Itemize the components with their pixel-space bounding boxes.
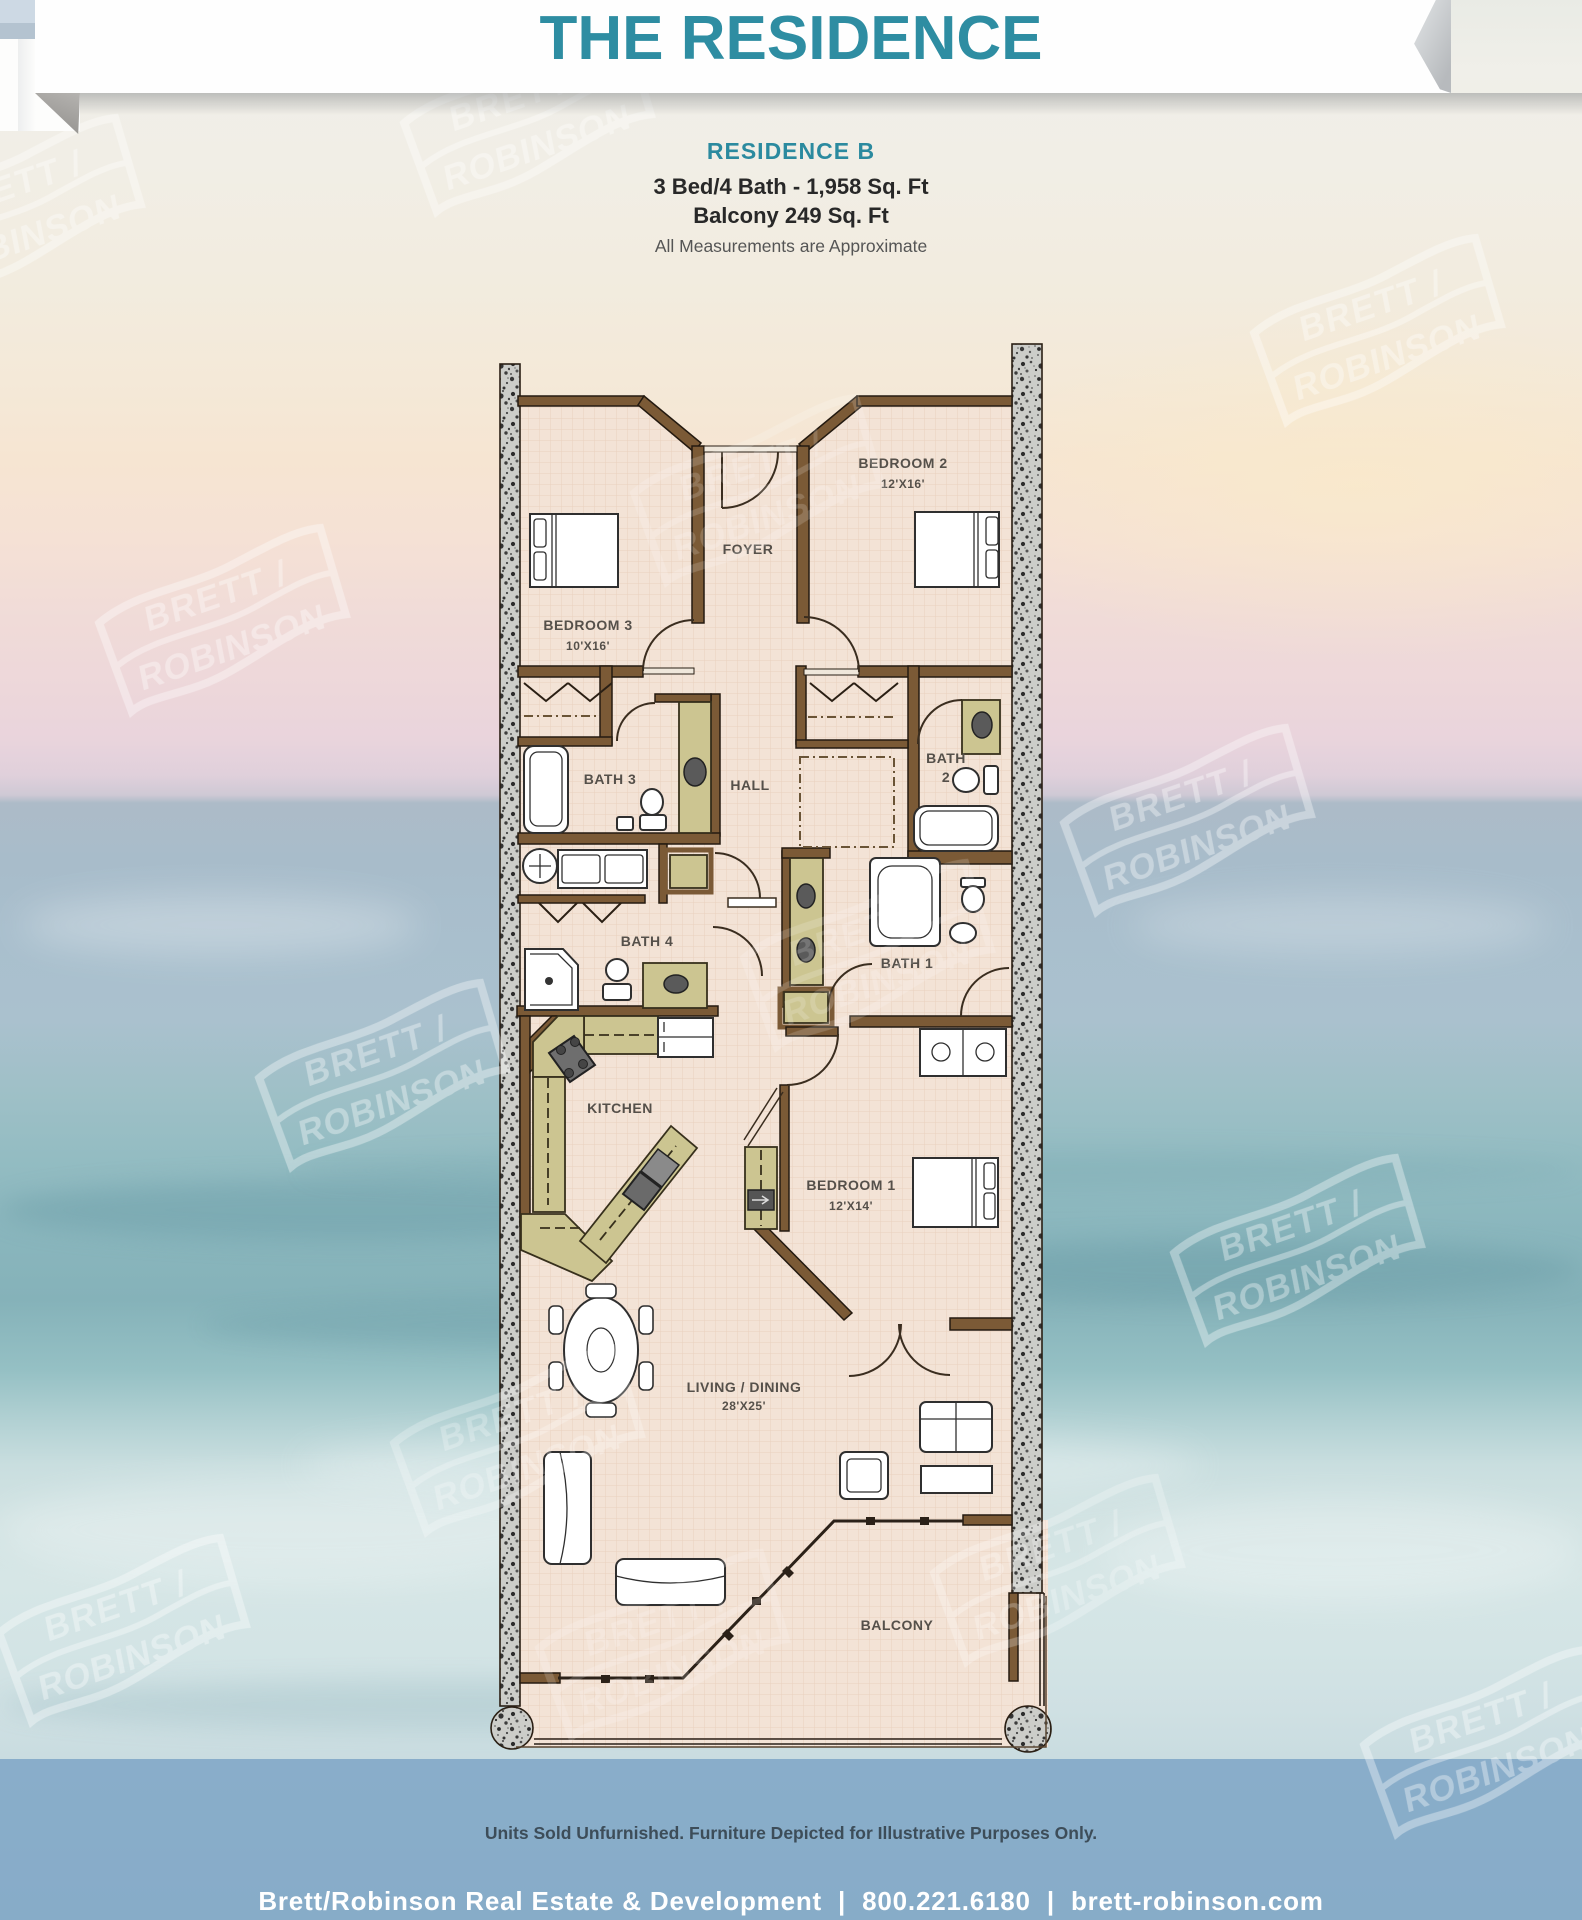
svg-text:12'X16': 12'X16' [881, 477, 925, 491]
svg-text:BATH 3: BATH 3 [584, 771, 637, 787]
svg-text:BEDROOM 1: BEDROOM 1 [806, 1177, 895, 1193]
svg-text:LIVING / DINING: LIVING / DINING [687, 1379, 802, 1395]
svg-text:BATH 4: BATH 4 [621, 933, 674, 949]
svg-text:28'X25': 28'X25' [722, 1399, 766, 1413]
svg-text:BALCONY: BALCONY [861, 1617, 934, 1633]
svg-text:12'X14': 12'X14' [829, 1199, 873, 1213]
svg-text:KITCHEN: KITCHEN [587, 1100, 653, 1116]
svg-text:HALL: HALL [730, 777, 769, 793]
svg-text:BATH: BATH [926, 750, 966, 766]
svg-text:2: 2 [942, 769, 950, 785]
svg-text:BEDROOM 3: BEDROOM 3 [543, 617, 632, 633]
svg-text:10'X16': 10'X16' [566, 639, 610, 653]
